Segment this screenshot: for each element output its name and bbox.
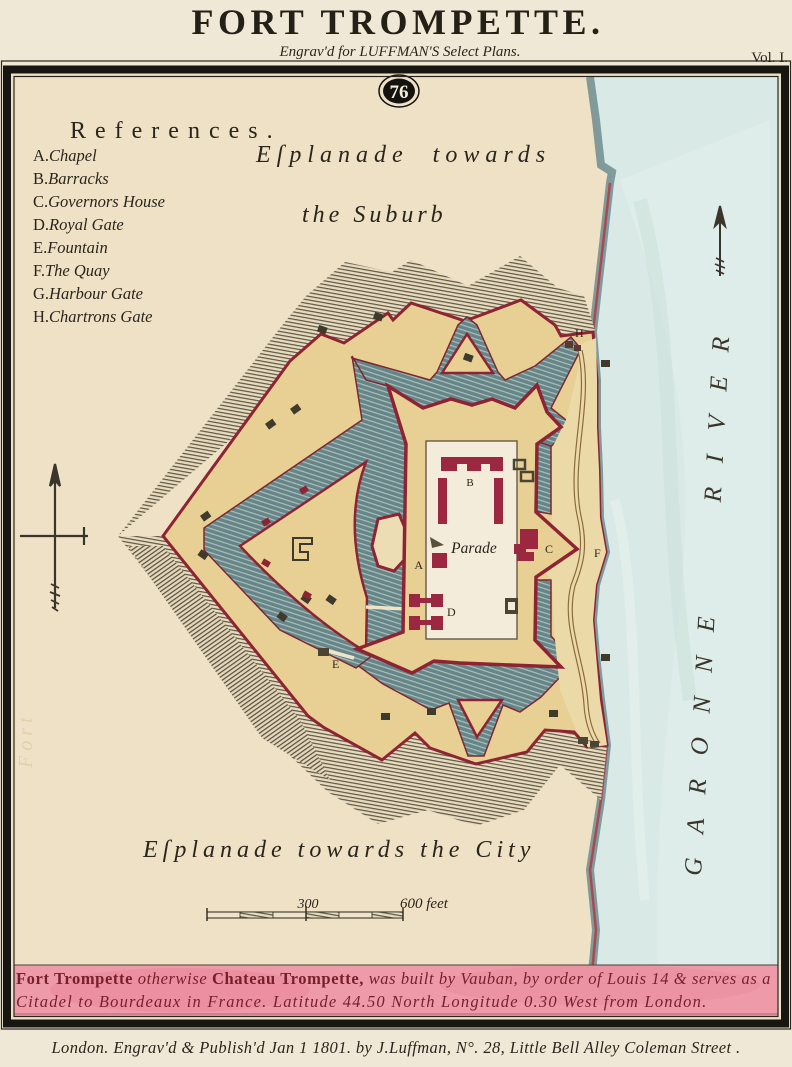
svg-text:References.: References. [70, 118, 282, 144]
svg-text:B.Barracks: B.Barracks [33, 169, 109, 188]
svg-text:Parade: Parade [450, 540, 497, 557]
svg-text:76: 76 [390, 82, 409, 103]
svg-text:D.Royal Gate: D.Royal Gate [33, 215, 124, 234]
svg-text:G.Harbour Gate: G.Harbour Gate [33, 284, 143, 303]
svg-text:Citadel to Bourdeaux in France: Citadel to Bourdeaux in France. Latitude… [16, 992, 707, 1011]
svg-text:F: F [594, 546, 601, 560]
svg-text:H.Chartrons Gate: H.Chartrons Gate [33, 307, 153, 326]
svg-text:FORT TROMPETTE.: FORT TROMPETTE. [192, 2, 605, 42]
svg-text:F.The Quay: F.The Quay [33, 261, 110, 280]
svg-text:600 feet: 600 feet [400, 896, 449, 912]
svg-text:Eſplanade towards the City: Eſplanade towards the City [142, 837, 535, 863]
svg-text:London. Engrav'd & Publish'd J: London. Engrav'd & Publish'd Jan 1 1801.… [50, 1038, 740, 1057]
svg-text:Fort: Fort [15, 712, 37, 769]
svg-text:Eſplanade towards: Eſplanade towards [255, 142, 551, 168]
svg-text:H: H [575, 326, 584, 340]
svg-text:E: E [332, 657, 339, 671]
svg-text:C.Governors House: C.Governors House [33, 192, 165, 211]
svg-text:Vol. I.: Vol. I. [751, 50, 788, 66]
svg-text:Engrav'd for LUFFMAN'S Select: Engrav'd for LUFFMAN'S Select Plans. [279, 44, 521, 60]
svg-text:the Suburb: the Suburb [302, 202, 447, 228]
svg-text:D: D [447, 605, 456, 619]
svg-text:B: B [466, 477, 473, 489]
svg-text:C: C [545, 542, 553, 556]
svg-text:A: A [414, 558, 423, 572]
svg-text:300: 300 [297, 897, 319, 912]
svg-text:A.Chapel: A.Chapel [33, 146, 97, 165]
svg-text:E.Fountain: E.Fountain [33, 238, 108, 257]
svg-text:Fort Trompette otherwise Chate: Fort Trompette otherwise Chateau Trompet… [16, 969, 771, 988]
